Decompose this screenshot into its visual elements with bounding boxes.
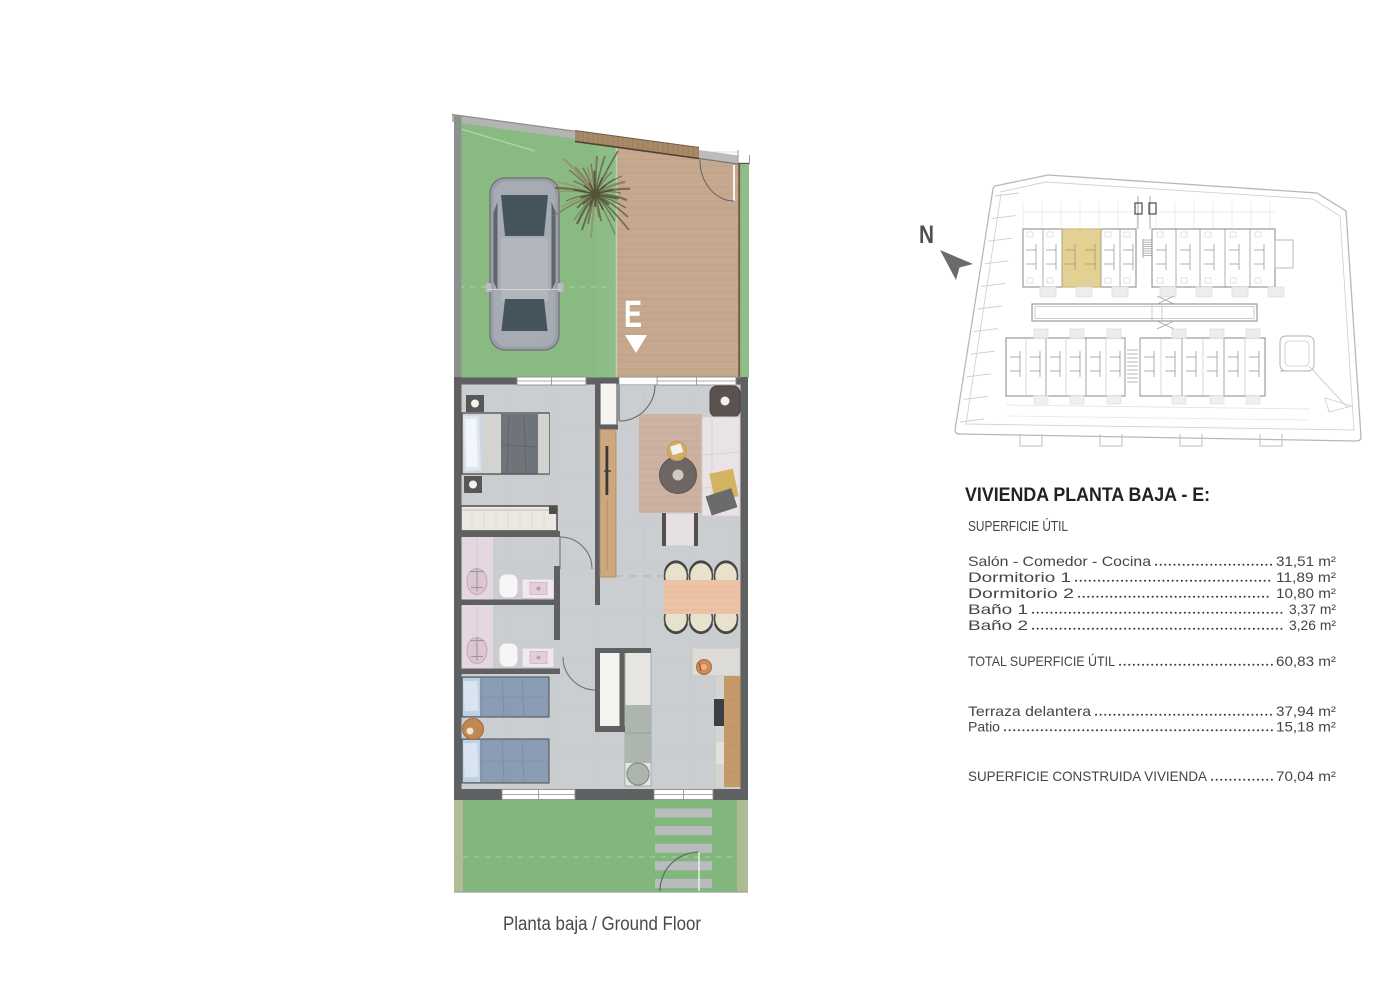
svg-text:3,26 m²: 3,26 m² — [1289, 618, 1336, 633]
svg-text:TOTAL SUPERFICIE ÚTIL: TOTAL SUPERFICIE ÚTIL — [968, 653, 1115, 669]
svg-text:10,80 m²: 10,80 m² — [1276, 586, 1336, 601]
svg-text:15,18 m²: 15,18 m² — [1276, 720, 1336, 735]
svg-text:70,04 m²: 70,04 m² — [1276, 769, 1336, 784]
svg-text:11,89 m²: 11,89 m² — [1276, 570, 1336, 585]
svg-text:SUPERFICIE CONSTRUIDA VIVIENDA: SUPERFICIE CONSTRUIDA VIVIENDA — [968, 769, 1208, 784]
svg-text:37,94 m²: 37,94 m² — [1276, 704, 1336, 719]
svg-text:3,37 m²: 3,37 m² — [1289, 602, 1336, 617]
svg-text:SUPERFICIE ÚTIL: SUPERFICIE ÚTIL — [968, 518, 1068, 535]
svg-text:Dormitorio 1: Dormitorio 1 — [968, 570, 1071, 585]
svg-text:60,83 m²: 60,83 m² — [1276, 654, 1336, 669]
svg-text:VIVIENDA PLANTA BAJA - E:: VIVIENDA PLANTA BAJA - E: — [965, 484, 1210, 506]
svg-text:Patio: Patio — [968, 720, 1000, 735]
svg-text:Terraza delantera: Terraza delantera — [968, 704, 1091, 719]
svg-text:E: E — [624, 294, 642, 336]
svg-text:Dormitorio 2: Dormitorio 2 — [968, 586, 1074, 601]
svg-text:Planta baja / Ground Floor: Planta baja / Ground Floor — [503, 914, 702, 935]
svg-text:Salón - Comedor - Cocina: Salón - Comedor - Cocina — [968, 554, 1151, 569]
svg-text:Baño 1: Baño 1 — [968, 602, 1028, 617]
svg-text:Baño 2: Baño 2 — [968, 618, 1028, 633]
svg-text:31,51 m²: 31,51 m² — [1276, 554, 1336, 569]
svg-text:N: N — [919, 221, 934, 249]
